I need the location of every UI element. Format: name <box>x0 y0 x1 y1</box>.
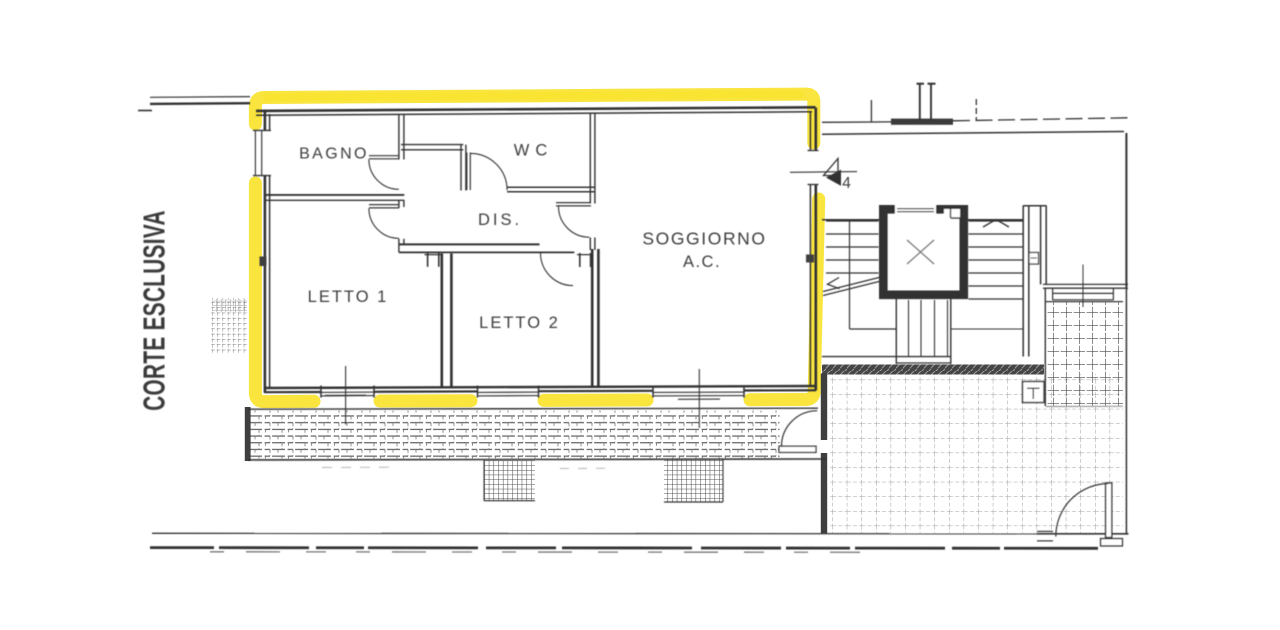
svg-text:CORTE ESCLUSIVA: CORTE ESCLUSIVA <box>136 210 171 411</box>
svg-text:SOGGIORNO: SOGGIORNO <box>642 229 766 249</box>
svg-text:BAGNO: BAGNO <box>299 146 369 163</box>
svg-text:A.C.: A.C. <box>683 253 721 271</box>
svg-text:4: 4 <box>842 175 851 192</box>
svg-text:LETTO 1: LETTO 1 <box>308 288 389 306</box>
svg-text:LETTO 2: LETTO 2 <box>479 314 560 332</box>
svg-text:DIS.: DIS. <box>478 211 522 229</box>
svg-text:WC: WC <box>514 142 554 160</box>
